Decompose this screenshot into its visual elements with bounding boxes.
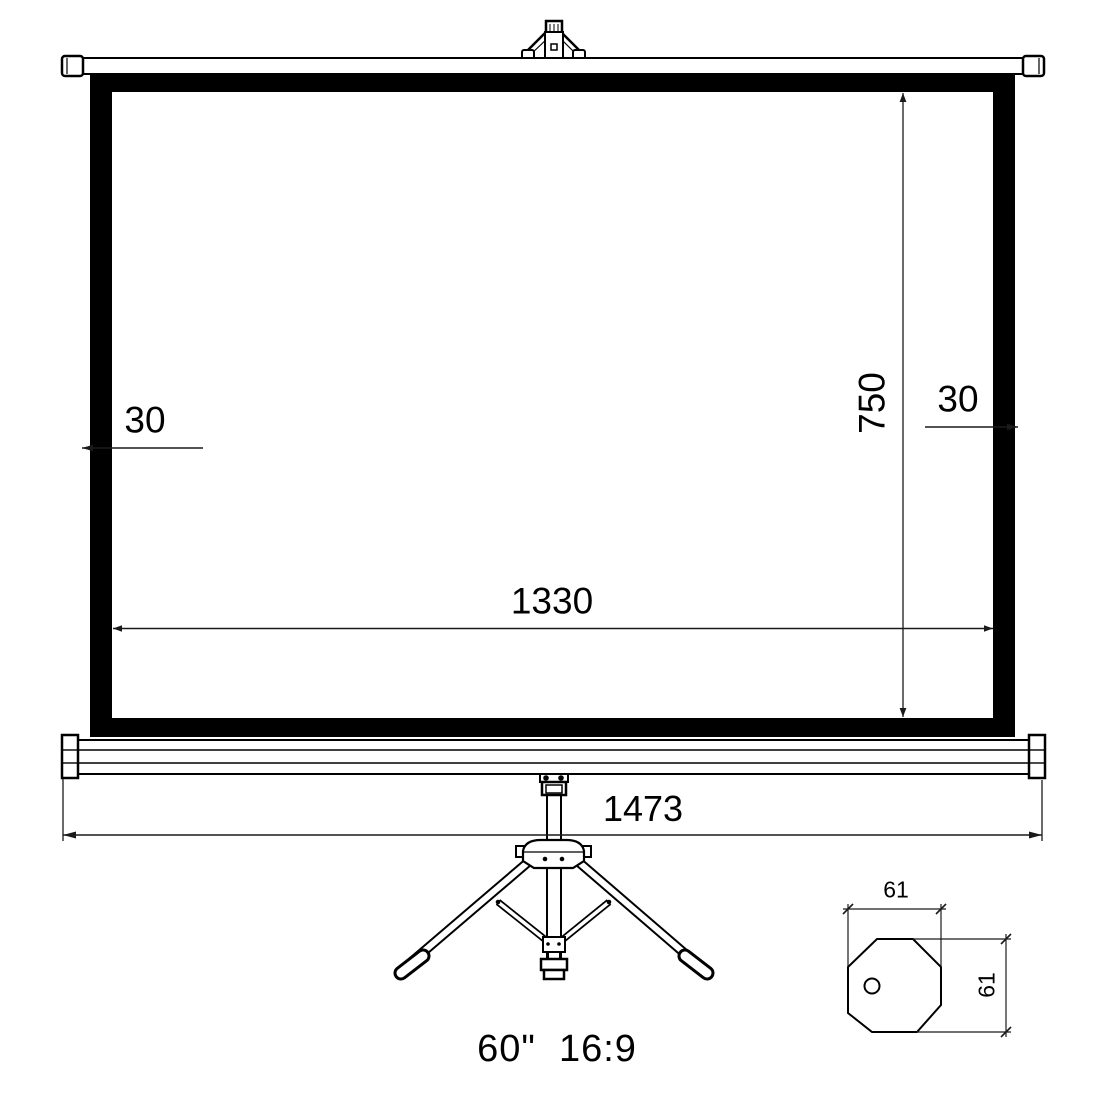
tripod-hub bbox=[523, 840, 584, 868]
top-bar-right-cap bbox=[1023, 56, 1044, 76]
bottom-bar-left-cap bbox=[62, 735, 78, 778]
caption-screen-size: 60" 16:9 bbox=[477, 1030, 637, 1068]
bottom-housing-bar bbox=[62, 735, 1045, 778]
label-border-width-right: 30 bbox=[937, 381, 978, 418]
hanging-bracket bbox=[522, 21, 585, 59]
diagram-canvas bbox=[0, 0, 1100, 1100]
top-housing-bar bbox=[62, 56, 1044, 76]
bottom-bar-right-cap bbox=[1029, 735, 1045, 778]
projector-screen-technical-drawing: 30 30 750 1330 1473 61 61 60" 16:9 bbox=[0, 0, 1100, 1100]
label-border-width-left: 30 bbox=[124, 402, 165, 439]
label-viewing-width: 1330 bbox=[511, 583, 593, 620]
tripod-pole bbox=[547, 793, 561, 958]
leg-cross-section-detail bbox=[843, 904, 1011, 1037]
label-leg-section-width: 61 bbox=[883, 879, 909, 902]
detail-hole bbox=[865, 979, 880, 994]
label-leg-section-height: 61 bbox=[976, 972, 999, 998]
label-overall-width: 1473 bbox=[603, 791, 683, 827]
top-bar-left-cap bbox=[62, 56, 83, 76]
pole-base-foot bbox=[541, 959, 567, 970]
label-viewing-height: 750 bbox=[854, 372, 891, 434]
detail-octagon bbox=[848, 939, 941, 1032]
